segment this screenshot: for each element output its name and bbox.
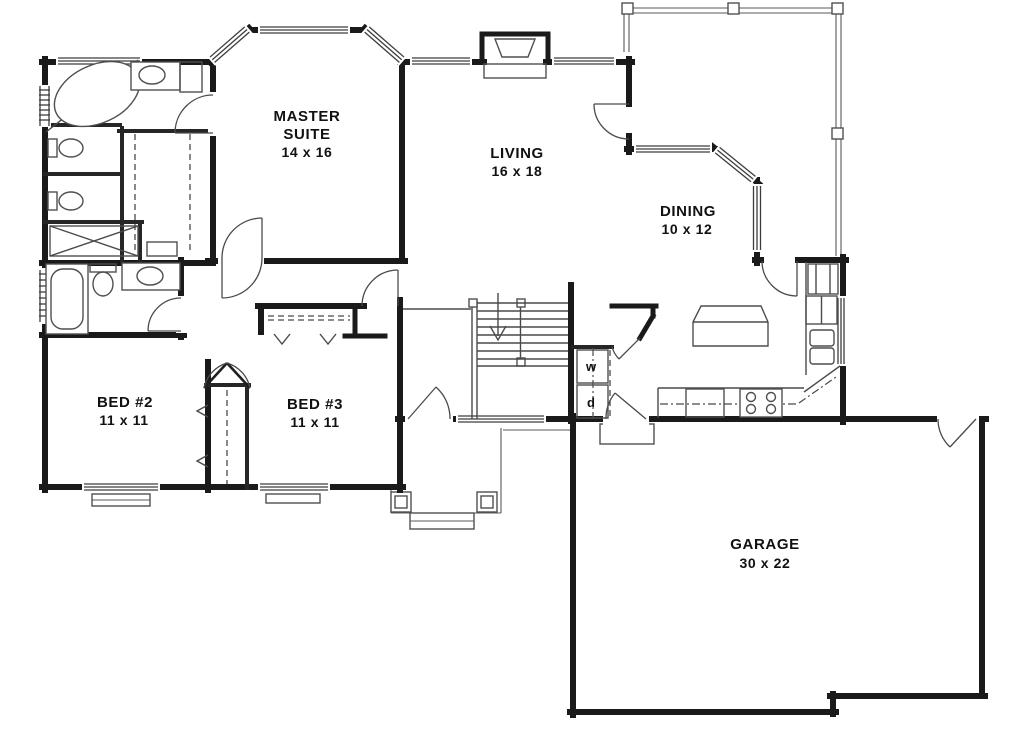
- front-porch: [391, 428, 571, 529]
- doors: [148, 92, 979, 447]
- range-stove: [740, 389, 782, 417]
- window-dining-right: [751, 184, 763, 252]
- window-bed2: [82, 481, 160, 506]
- bed2-dims: 11 x 11: [99, 412, 148, 428]
- window-dining-diagonal: [712, 144, 759, 186]
- master-suite-label-2: SUITE: [283, 126, 330, 143]
- hall-bath: [46, 263, 180, 334]
- living-label: LIVING: [490, 145, 544, 162]
- master-suite-door: [218, 218, 264, 298]
- dishwasher: [686, 389, 724, 417]
- dining-deck-door: [762, 254, 797, 296]
- staircase-down: [403, 293, 568, 419]
- bay-window-center: [258, 24, 350, 36]
- bed3-closet: [268, 316, 350, 344]
- pantry: [808, 264, 838, 294]
- bed3-label: BED #3: [287, 396, 343, 413]
- master-suite-label-1: MASTER: [274, 108, 341, 125]
- bed3-door: [362, 270, 398, 306]
- walk-in-closet: [135, 134, 190, 256]
- garage-dims: 30 x 22: [740, 555, 791, 571]
- master-suite-dims: 14 x 16: [282, 144, 333, 160]
- deck: [622, 3, 843, 256]
- linen-closet: [50, 226, 138, 256]
- vanity-cabinet: [180, 62, 202, 92]
- toilet: [48, 192, 83, 210]
- hall-bath-door: [148, 296, 187, 333]
- window-entry-sidelight: [456, 413, 546, 426]
- garage-stoop: [600, 424, 654, 444]
- window-living-left: [410, 55, 472, 68]
- garage-label: GARAGE: [730, 536, 799, 553]
- room-labels: MASTER SUITE 14 x 16 LIVING 16 x 18 DINI…: [97, 108, 800, 571]
- floor-plan-page: w d: [0, 0, 1024, 730]
- bed3-dims: 11 x 11: [290, 414, 339, 430]
- garage-entry-door: [603, 393, 649, 425]
- washer-dryer-closet: w d: [577, 348, 610, 419]
- window-kitchen-sink: [836, 296, 848, 366]
- living-dims: 16 x 18: [492, 163, 543, 179]
- deck-post: [622, 3, 633, 14]
- window-bed3: [258, 481, 330, 503]
- kitchen: [658, 262, 840, 418]
- refrigerator: [806, 296, 837, 324]
- washer-label: w: [585, 359, 597, 374]
- window-dining-top: [634, 142, 712, 155]
- porch-post: [391, 492, 411, 512]
- dining-dims: 10 x 12: [662, 221, 713, 237]
- double-sink: [810, 330, 834, 364]
- porch-post: [477, 492, 497, 512]
- kitchen-island: [693, 306, 768, 346]
- deck-post: [728, 3, 739, 14]
- front-door: [405, 387, 453, 425]
- dining-label: DINING: [660, 203, 716, 220]
- window-left-upper: [38, 85, 51, 127]
- bay-window-left: [207, 23, 253, 66]
- garage-service-door: [937, 413, 979, 447]
- dryer-label: d: [587, 395, 595, 410]
- deck-post: [832, 128, 843, 139]
- floor-plan-drawing: w d: [0, 0, 1024, 730]
- living-deck-door: [594, 104, 629, 139]
- bay-window-right: [361, 23, 407, 66]
- fireplace: [482, 34, 548, 78]
- hall-kitchen-door: [612, 338, 640, 359]
- toilet: [48, 139, 83, 157]
- toilet: [90, 264, 116, 296]
- bed2-label: BED #2: [97, 394, 153, 411]
- deck-post: [832, 3, 843, 14]
- window-living-right: [552, 55, 616, 68]
- down-arrow-icon: [490, 293, 506, 340]
